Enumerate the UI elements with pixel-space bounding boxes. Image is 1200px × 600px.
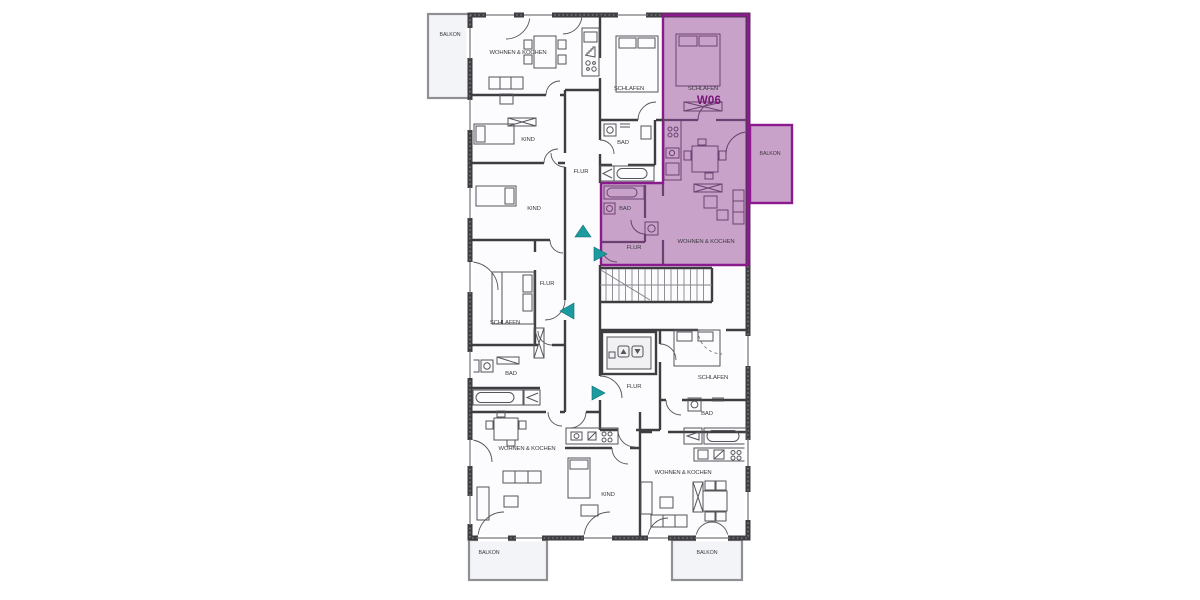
label-unit-w06: W06 <box>697 95 721 107</box>
label-balkon-bottom-left: BALKON <box>479 550 500 556</box>
label-wohnen-kochen-br: WOHNEN & KOCHEN <box>655 470 712 476</box>
label-balkon-top-left: BALKON <box>440 32 461 38</box>
label-schlafen-ml: SCHLAFEN <box>490 320 520 326</box>
label-wohnen-kochen-w06: WOHNEN & KOCHEN <box>678 239 735 245</box>
label-bad-tm: BAD <box>617 140 629 146</box>
label-kind-1: KIND <box>521 137 534 143</box>
label-balkon-bottom-right: BALKON <box>697 550 718 556</box>
label-bad-br: BAD <box>701 411 713 417</box>
balcony-bottom-right: BALKON <box>672 540 742 580</box>
label-wohnen-kochen-tl: WOHNEN & KOCHEN <box>490 50 547 56</box>
elevator <box>602 332 656 374</box>
label-flur-ml: FLUR <box>540 281 555 287</box>
balcony-top-left: BALKON <box>428 14 472 98</box>
unit-w06-balcony <box>750 125 792 203</box>
label-kind-2: KIND <box>527 206 540 212</box>
balcony-bottom-left: BALKON <box>469 540 547 580</box>
label-balkon-w06: BALKON <box>760 151 781 157</box>
floor-plan-page: BALKON BALKON BALKON <box>0 0 1200 600</box>
label-flur-br: FLUR <box>627 384 642 390</box>
label-schlafen-w06: SCHLAFEN <box>688 86 718 92</box>
label-kind-4: KIND <box>601 492 614 498</box>
label-wohnen-kochen-bl: WOHNEN & KOCHEN <box>499 446 556 452</box>
label-schlafen-br: SCHLAFEN <box>698 375 728 381</box>
label-schlafen-tm: SCHLAFEN <box>614 86 644 92</box>
floor-plan-svg: BALKON BALKON BALKON <box>0 0 1200 600</box>
window-strip-west <box>467 28 474 524</box>
label-flur-corridor: FLUR <box>574 169 589 175</box>
label-bad-ml: BAD <box>505 371 517 377</box>
label-flur-w06: FLUR <box>627 245 642 251</box>
label-bad-w06: BAD <box>619 206 631 212</box>
